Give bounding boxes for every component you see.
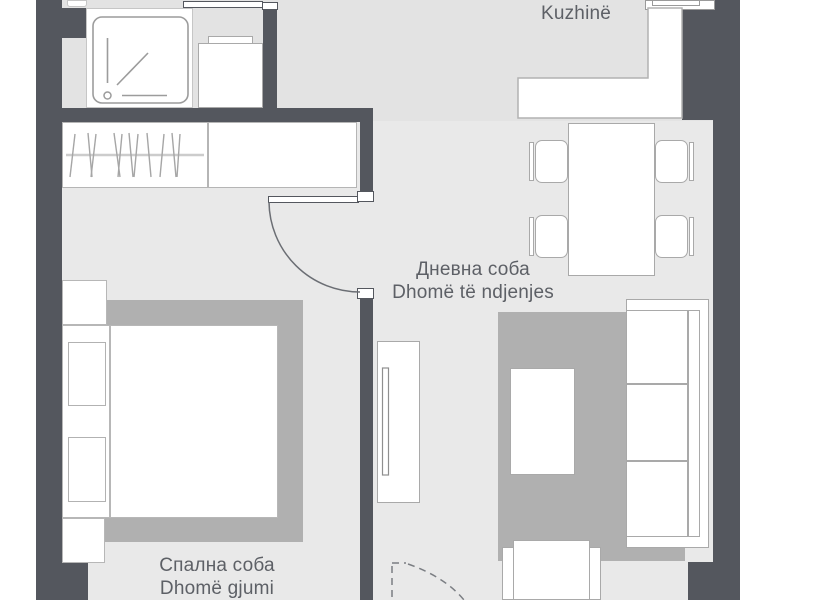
nightstand-bottom bbox=[62, 518, 105, 563]
shower-tray bbox=[86, 8, 193, 108]
dining-chair-back bbox=[529, 142, 534, 181]
wall-partition-lower bbox=[360, 298, 373, 600]
coffee-table bbox=[510, 368, 575, 475]
label-kitchen-sq: Kuzhinë bbox=[541, 2, 611, 25]
dining-chair-seat bbox=[535, 215, 568, 258]
dining-chair-back bbox=[689, 217, 694, 256]
label-living-room-mk: Дневна соба bbox=[416, 258, 530, 281]
bathroom-door-leaf bbox=[183, 1, 263, 8]
label-corridor-sq: Korridor bbox=[317, 0, 386, 6]
wall-top-right-stub bbox=[715, 0, 740, 10]
wall-bottom-right-block bbox=[688, 562, 740, 600]
wall-bottom-left-block bbox=[36, 562, 88, 600]
kitchen-appliance-detail bbox=[652, 0, 700, 6]
label-bedroom-mk: Спална соба bbox=[159, 554, 275, 577]
bedroom-door-hinge-cap bbox=[357, 191, 374, 202]
armchair-back bbox=[513, 540, 590, 600]
tv-stand bbox=[377, 341, 420, 503]
wall-bathroom-corner-block bbox=[62, 8, 86, 38]
wall-bathroom-bottom bbox=[36, 108, 373, 122]
dining-chair-seat bbox=[535, 140, 568, 183]
armchair-arm bbox=[502, 547, 514, 600]
washing-machine bbox=[198, 43, 263, 108]
sofa-cushion bbox=[626, 461, 688, 537]
dining-chair-back bbox=[529, 217, 534, 256]
dining-chair-seat bbox=[655, 215, 688, 258]
wall-left bbox=[36, 0, 62, 600]
bed-pillow bbox=[68, 437, 106, 502]
sofa-cushion bbox=[626, 310, 688, 384]
sofa-cushion bbox=[626, 384, 688, 461]
wall-kitchen-right bbox=[682, 10, 740, 120]
bed-mattress bbox=[110, 325, 278, 518]
floor-plan: Korridor Кујна Kuzhinë Дневна соба Dhomë… bbox=[0, 0, 820, 600]
bathroom-wall-fixture bbox=[67, 0, 87, 7]
wall-right bbox=[713, 120, 740, 562]
label-living-room-sq: Dhomë të ndjenjes bbox=[392, 281, 554, 304]
wall-partition-upper bbox=[360, 122, 373, 192]
dining-chair-seat bbox=[655, 140, 688, 183]
bedroom-door-hinge-cap bbox=[357, 288, 374, 299]
bathroom-door-hinge-cap bbox=[262, 2, 278, 10]
label-bedroom-sq: Dhomë gjumi bbox=[160, 577, 274, 600]
wall-bathroom-right bbox=[263, 10, 277, 108]
bedroom-door-leaf bbox=[268, 196, 359, 203]
armchair-arm bbox=[589, 547, 601, 600]
dining-chair-back bbox=[689, 142, 694, 181]
sofa-backrest bbox=[688, 310, 700, 537]
wardrobe-hanger-section bbox=[62, 122, 208, 188]
dining-table bbox=[568, 123, 655, 276]
wardrobe-shelf-section bbox=[208, 122, 357, 188]
nightstand-top bbox=[62, 280, 107, 325]
bed-pillow bbox=[68, 342, 106, 406]
